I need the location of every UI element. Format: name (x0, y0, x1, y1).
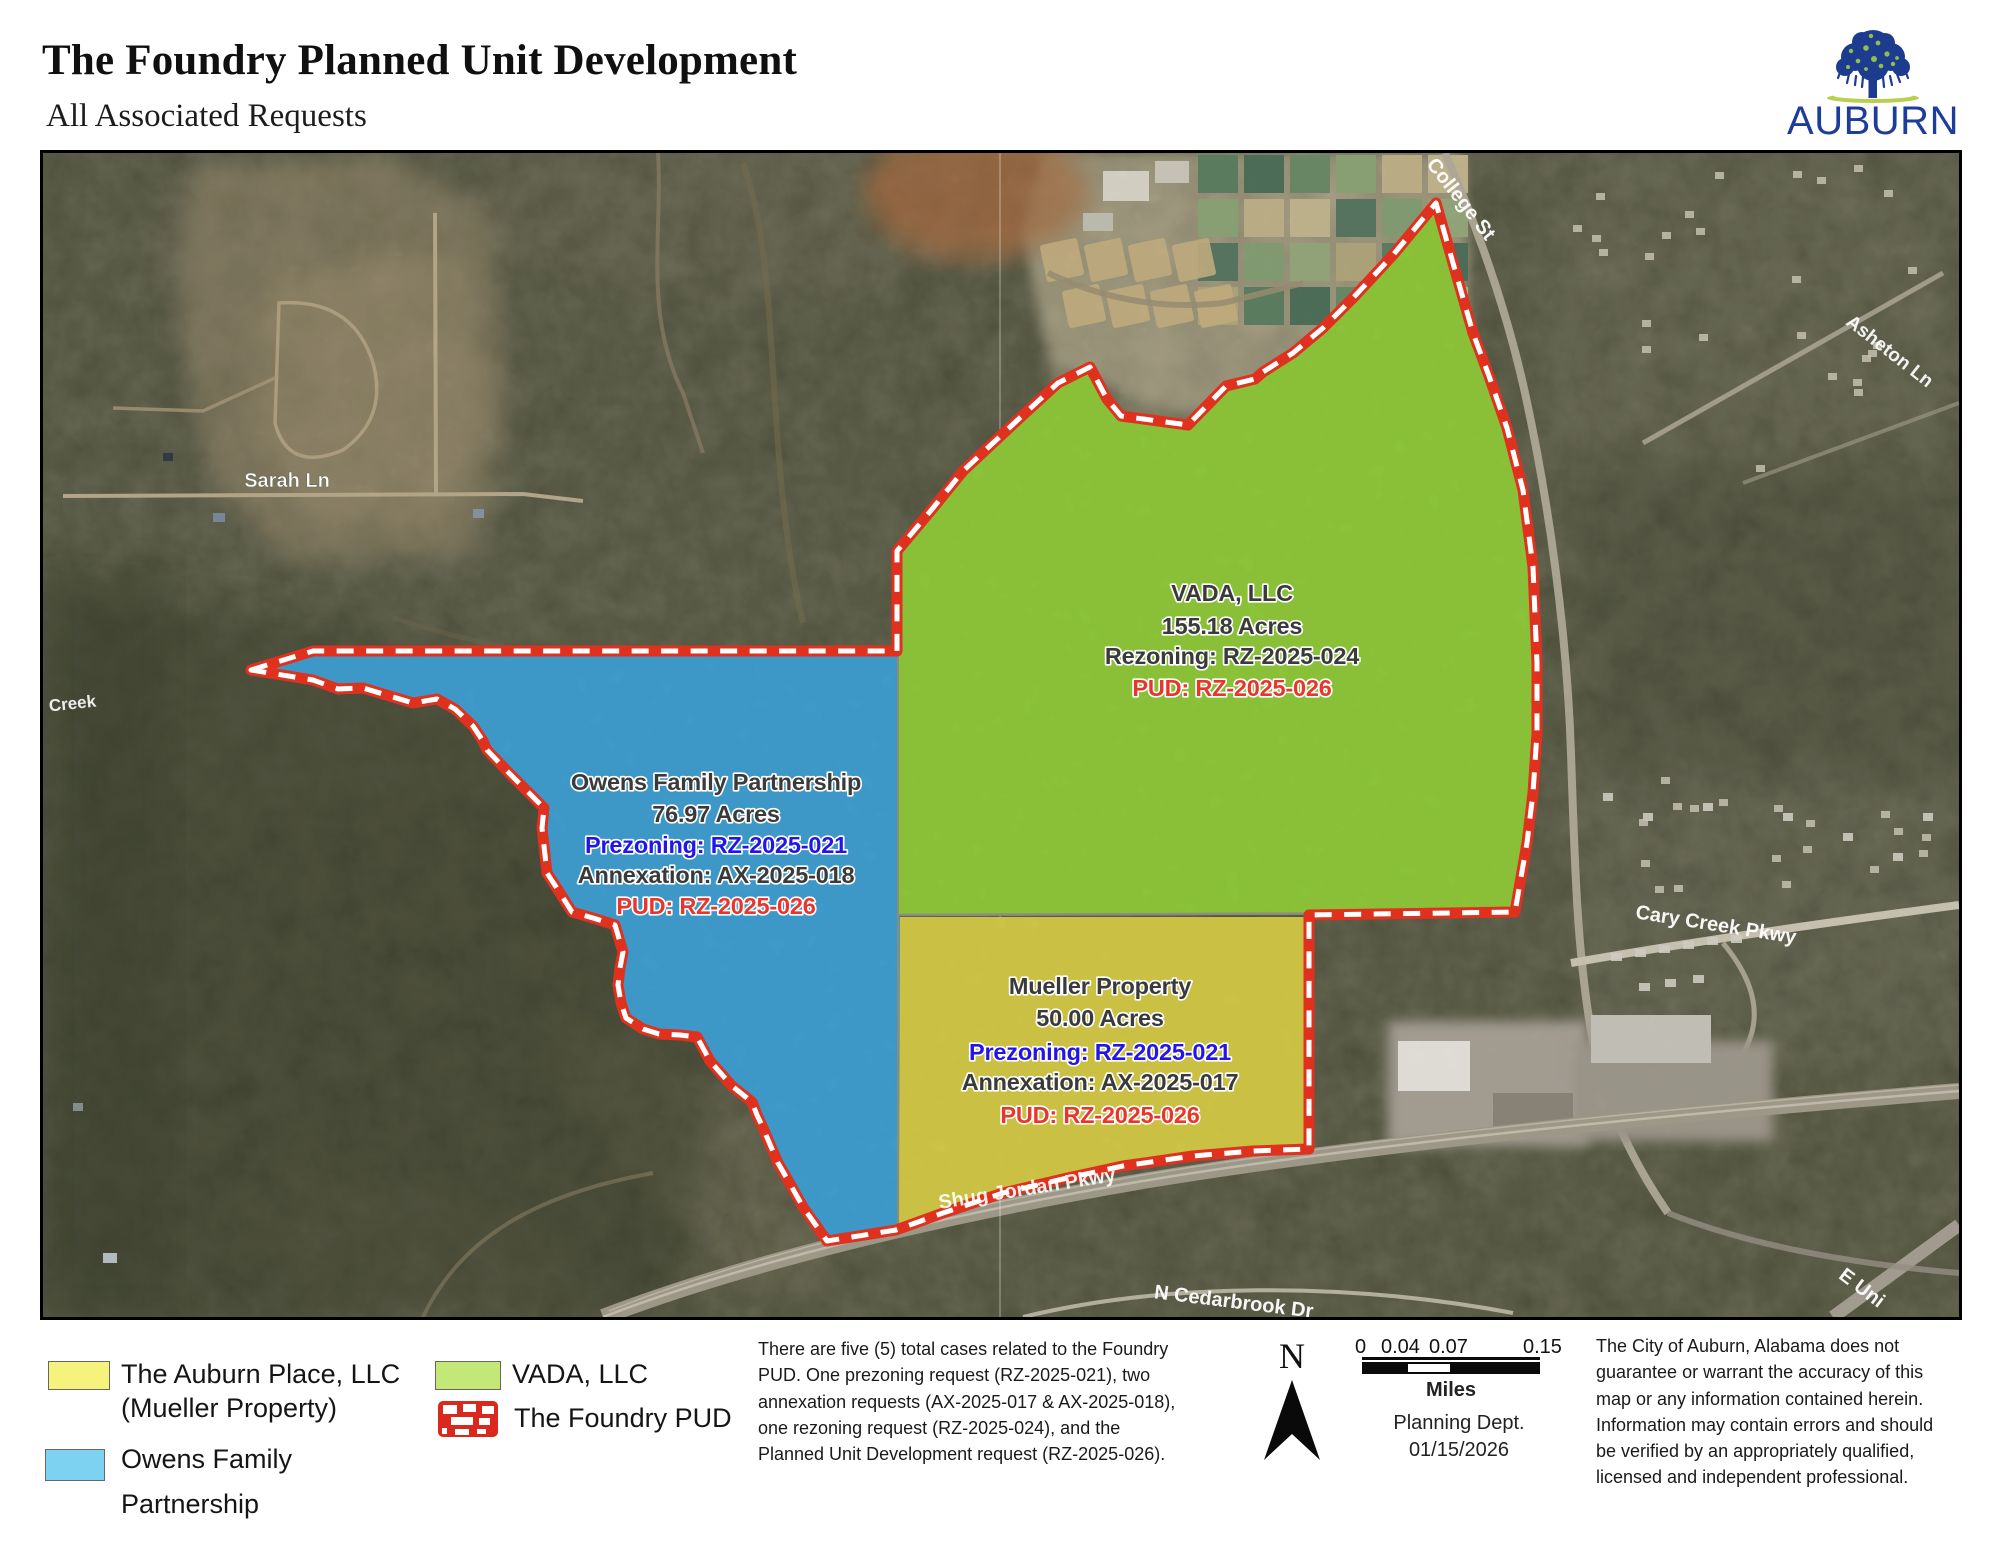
svg-text:Mueller Property: Mueller Property (1009, 973, 1191, 999)
svg-text:Annexation: AX-2025-017: Annexation: AX-2025-017 (962, 1069, 1239, 1095)
svg-text:N: N (1279, 1340, 1305, 1376)
svg-text:PUD: RZ-2025-026: PUD: RZ-2025-026 (1000, 1102, 1199, 1128)
svg-text:Annexation: AX-2025-018: Annexation: AX-2025-018 (578, 862, 855, 888)
svg-text:155.18 Acres: 155.18 Acres (1162, 613, 1303, 639)
svg-text:PUD: RZ-2025-026: PUD: RZ-2025-026 (1132, 675, 1331, 701)
svg-text:VADA, LLC: VADA, LLC (1171, 580, 1293, 606)
svg-text:PUD: RZ-2025-026: PUD: RZ-2025-026 (616, 893, 815, 919)
svg-text:Rezoning: RZ-2025-024: Rezoning: RZ-2025-024 (1105, 643, 1359, 669)
svg-text:76.97 Acres: 76.97 Acres (652, 801, 780, 827)
svg-text:Prezoning: RZ-2025-021: Prezoning: RZ-2025-021 (969, 1039, 1231, 1065)
svg-text:Owens Family Partnership: Owens Family Partnership (571, 769, 861, 795)
svg-text:50.00 Acres: 50.00 Acres (1036, 1005, 1164, 1031)
svg-text:Sarah Ln: Sarah Ln (244, 470, 330, 492)
svg-text:Prezoning: RZ-2025-021: Prezoning: RZ-2025-021 (585, 832, 847, 858)
